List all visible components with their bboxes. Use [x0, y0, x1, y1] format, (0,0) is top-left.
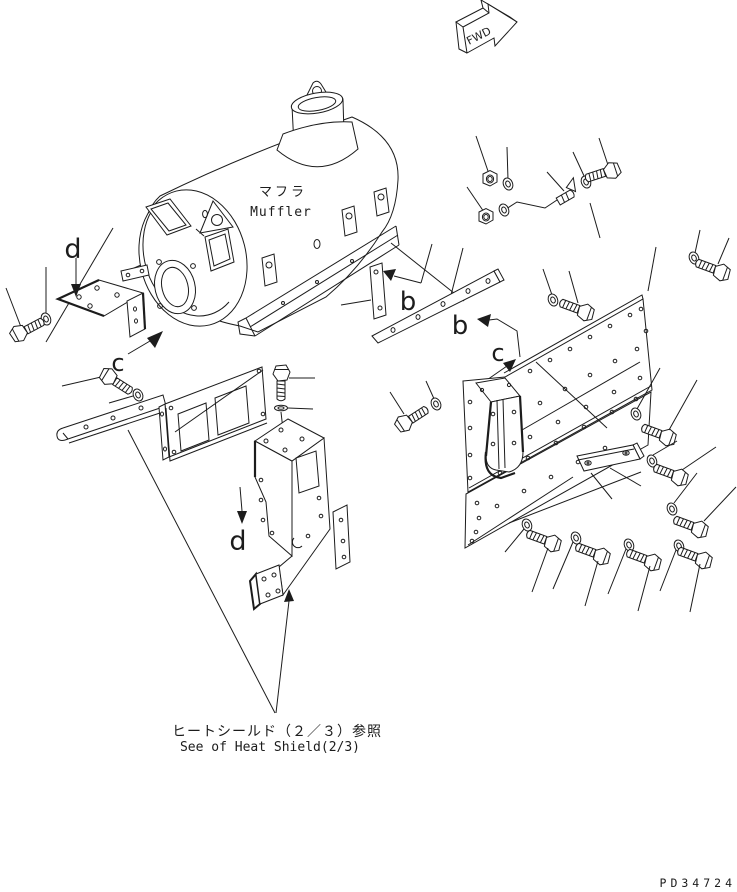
fwd-arrow: FWD [456, 0, 517, 53]
muffler-label-jp: マフラ [259, 185, 307, 200]
washer [665, 502, 678, 517]
callout-d-left: d [64, 234, 81, 265]
bolt [651, 460, 690, 488]
arrow-d-center [237, 511, 247, 524]
callout-b-right: b [452, 311, 469, 341]
bolt [392, 401, 431, 435]
callout-b-left: b [400, 287, 417, 317]
bolt [624, 545, 663, 573]
bolt [524, 526, 563, 554]
left-bracket-assembly [58, 265, 149, 337]
nut [479, 209, 493, 225]
bolt [675, 543, 714, 571]
parts-diagram-svg: FWD マフラ Muffler d c b b c d ヒートシールド（２／３）… [0, 0, 737, 892]
washer [546, 293, 559, 308]
bolt [671, 512, 710, 540]
arrow-c-left [147, 331, 163, 348]
reference-note-en: See of Heat Shield(2/3) [180, 740, 360, 755]
washer [275, 405, 288, 411]
nut [483, 171, 497, 187]
vertical-bracket [250, 419, 350, 609]
washer [131, 387, 145, 402]
exhaust-pipe [277, 81, 358, 167]
parts-diagram-page: FWD マフラ Muffler d c b b c d ヒートシールド（２／３）… [0, 0, 737, 892]
bolt [273, 365, 290, 401]
muffler-label-en: Muffler [250, 205, 312, 220]
drawing-number: PD34724 [660, 876, 736, 890]
washer [501, 177, 514, 192]
reference-note-jp: ヒートシールド（２／３）参照 [172, 723, 382, 740]
arrow-b-right [477, 314, 491, 327]
heat-shield-panel [463, 295, 652, 548]
bolt [693, 255, 732, 283]
bolt [573, 539, 612, 567]
arrow-b-left [383, 269, 396, 281]
callout-d-center: d [229, 526, 246, 557]
washer [569, 531, 582, 546]
callout-c-left: c [111, 349, 124, 377]
arrow-c-right [503, 359, 516, 372]
washer [497, 203, 510, 218]
callout-c-right: c [491, 339, 504, 367]
washer [429, 396, 443, 411]
frame-bracket [159, 367, 267, 461]
